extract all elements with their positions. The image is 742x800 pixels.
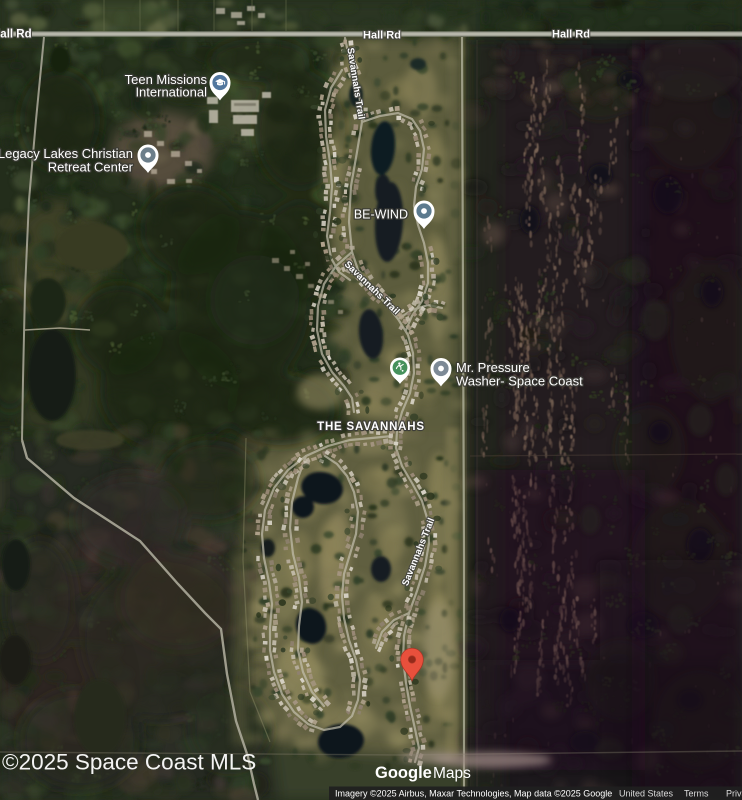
svg-text:Priva: Priva xyxy=(726,789,742,799)
svg-text:Imagery ©2025 Airbus, Maxar Te: Imagery ©2025 Airbus, Maxar Technologies… xyxy=(335,789,612,799)
svg-text:Hall Rd: Hall Rd xyxy=(0,29,32,41)
svg-text:Google: Google xyxy=(375,764,432,782)
svg-text:Teen MissionsInternational: Teen MissionsInternational xyxy=(125,72,208,100)
svg-text:Maps: Maps xyxy=(433,765,471,782)
svg-text:Hall Rd: Hall Rd xyxy=(552,29,590,41)
svg-text:Terms: Terms xyxy=(684,789,709,799)
svg-text:Hall Rd: Hall Rd xyxy=(363,30,401,42)
svg-text:©2025 Space Coast MLS: ©2025 Space Coast MLS xyxy=(2,750,256,775)
svg-text:THE SAVANNAHS: THE SAVANNAHS xyxy=(317,421,425,433)
svg-text:BE-WIND: BE-WIND xyxy=(354,208,408,222)
svg-text:United States: United States xyxy=(619,789,674,799)
